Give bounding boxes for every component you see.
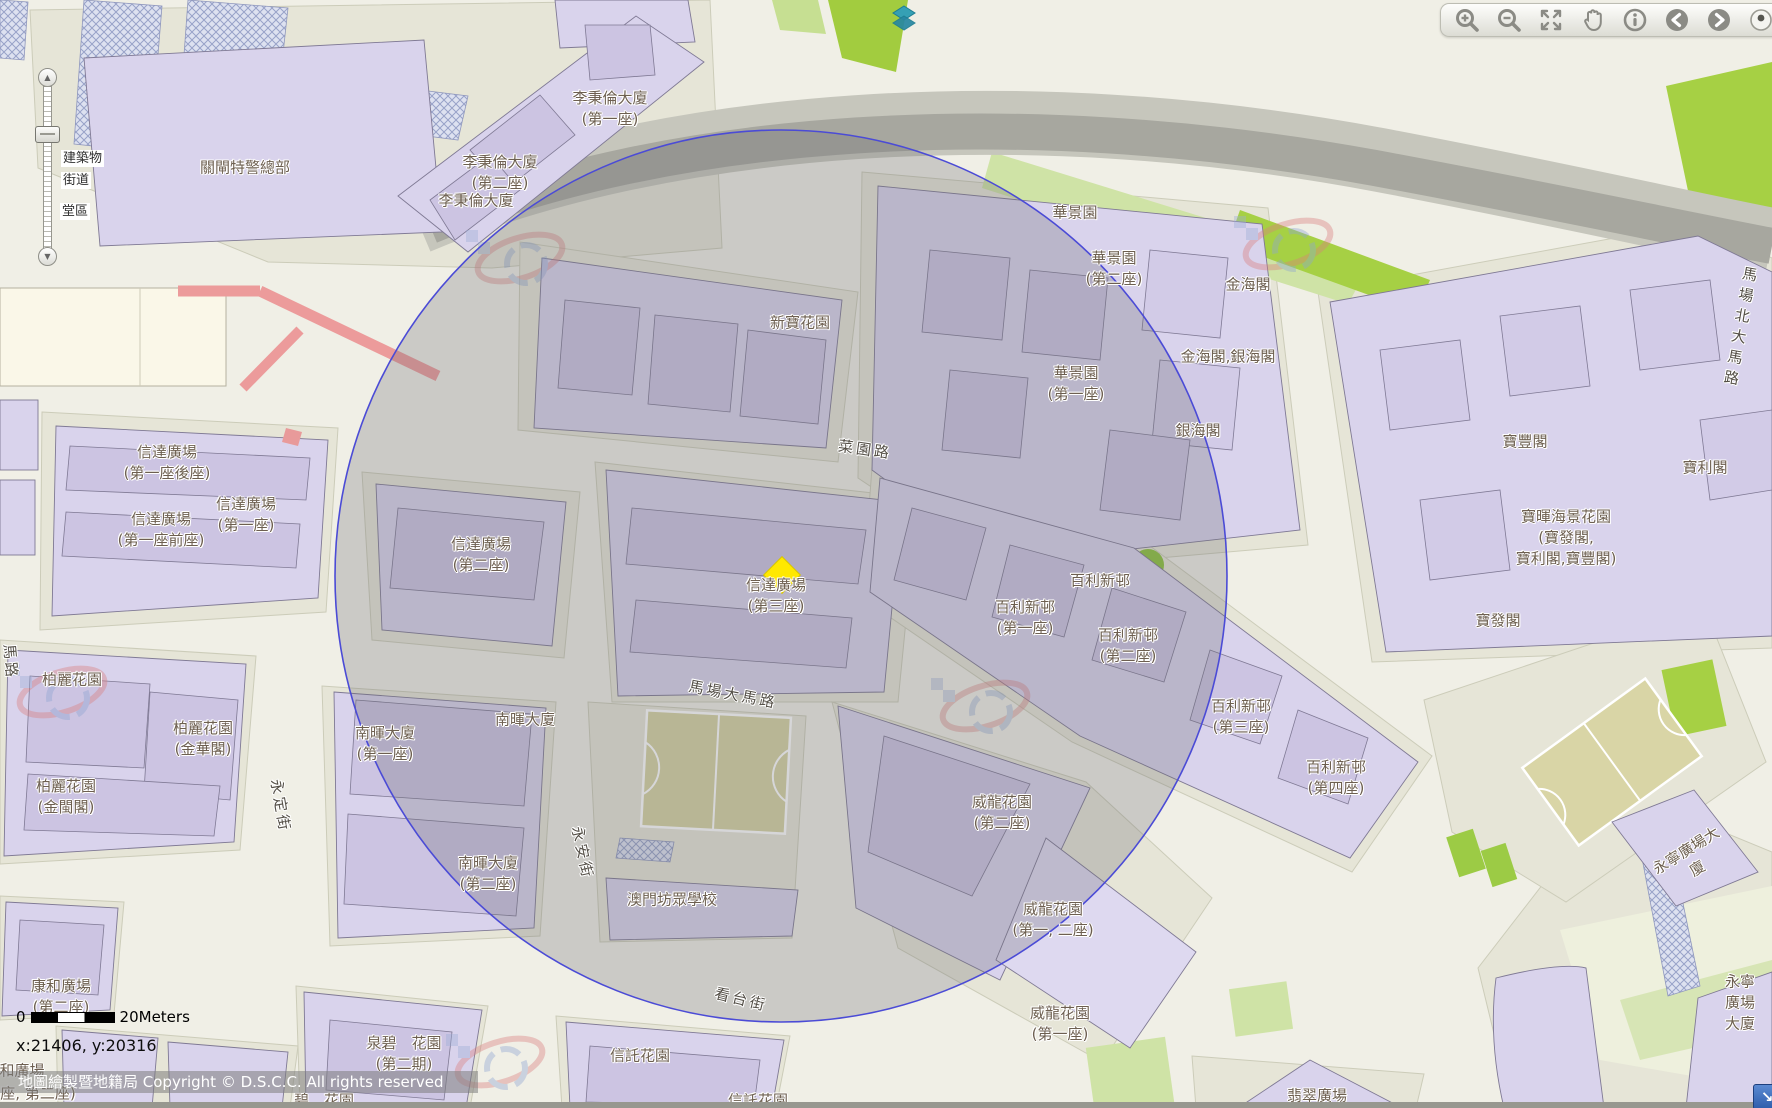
cream-building: [0, 288, 226, 386]
layer-chip-streets[interactable]: 街道: [61, 172, 91, 189]
zoom-slider-up-button[interactable]: ▲: [38, 68, 57, 87]
layer-chip-parish[interactable]: 堂區: [60, 203, 90, 220]
next-extent-icon[interactable]: [1705, 6, 1733, 34]
scale-distance-label: 20Meters: [120, 1008, 190, 1026]
zoom-slider-down-button[interactable]: ▼: [38, 247, 57, 266]
previous-extent-icon[interactable]: [1663, 6, 1691, 34]
overview-map-toggle-button[interactable]: ↘: [1753, 1084, 1772, 1108]
copyright-bar: 地圖繪製暨地籍局 Copyright © D.S.C.C. All rights…: [0, 1071, 478, 1093]
zoom-slider-track[interactable]: [43, 86, 52, 250]
zoom-in-icon[interactable]: [1453, 6, 1481, 34]
layers-badge-icon[interactable]: [891, 4, 917, 38]
overview-dot-icon[interactable]: [1747, 6, 1772, 34]
full-extent-icon[interactable]: [1537, 6, 1565, 34]
cursor-coordinates: x:21406, y:20316: [16, 1036, 157, 1055]
map-application: 關閘特警總部李秉倫大廈 (第一座)李秉倫大廈 (第二座)李秉倫大廈新寶花園華景園…: [0, 0, 1772, 1108]
pan-icon[interactable]: [1579, 6, 1607, 34]
scale-strip: [31, 1012, 115, 1023]
map-toolbar: [1440, 3, 1772, 37]
zoom-slider: ▲ ▼: [34, 68, 60, 264]
zoom-out-icon[interactable]: [1495, 6, 1523, 34]
scale-bar: 0 20Meters: [16, 1008, 190, 1026]
layer-chip-buildings[interactable]: 建築物: [61, 150, 104, 167]
scale-zero-label: 0: [16, 1008, 26, 1026]
zoom-slider-handle[interactable]: [35, 126, 60, 143]
identify-icon[interactable]: [1621, 6, 1649, 34]
map-canvas[interactable]: [0, 0, 1772, 1108]
window-bottom-edge: [0, 1102, 1772, 1108]
